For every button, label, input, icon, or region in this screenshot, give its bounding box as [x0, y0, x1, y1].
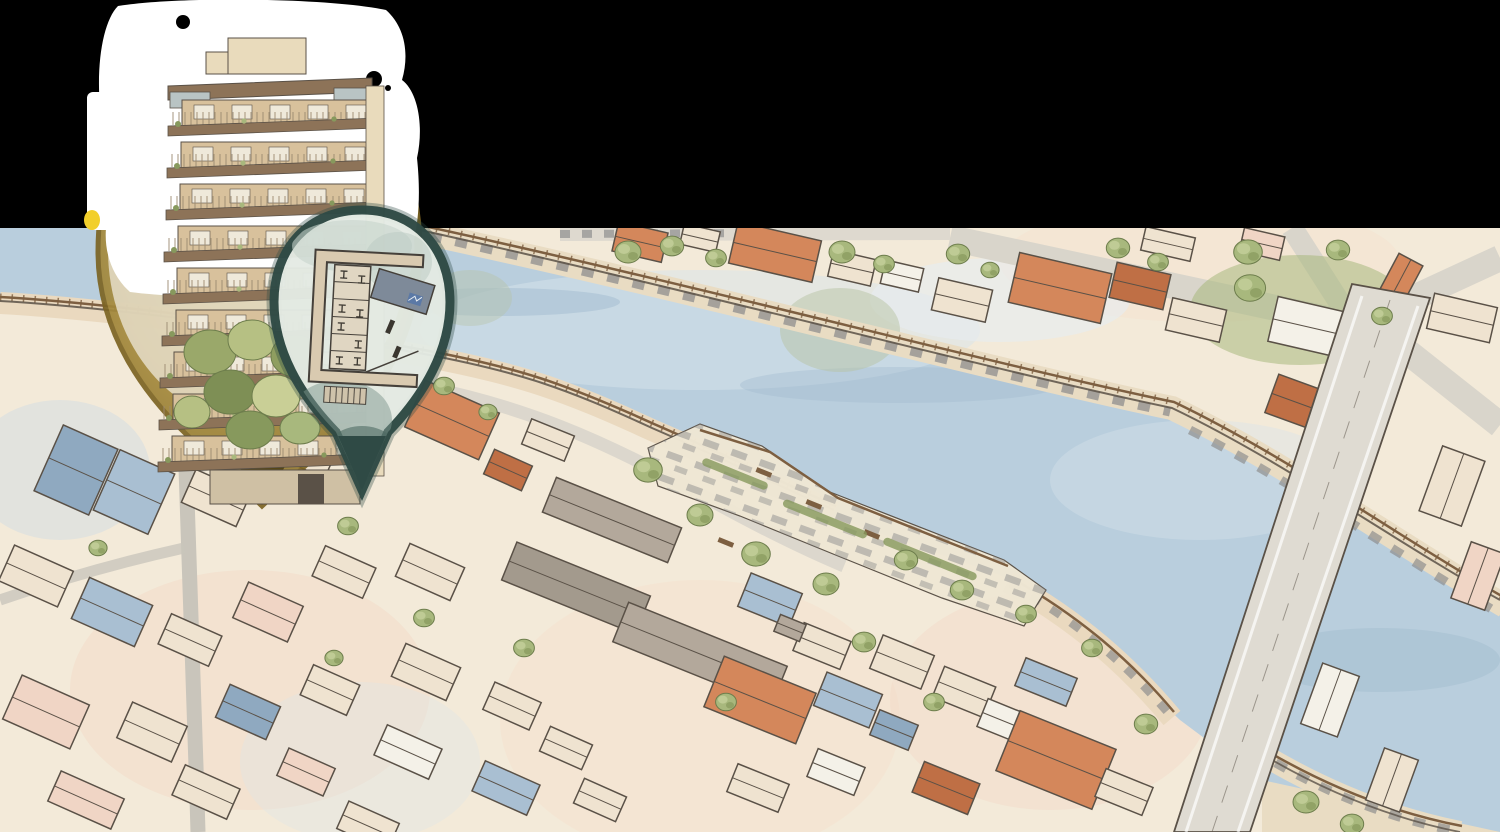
tree	[742, 542, 771, 566]
tree	[706, 249, 727, 267]
plan-stairs	[324, 386, 367, 404]
yellow-paint-fleck	[84, 210, 100, 230]
tree	[874, 255, 895, 273]
tree	[1016, 605, 1037, 623]
tree	[687, 504, 713, 526]
tree	[1326, 240, 1349, 260]
tree	[1082, 639, 1103, 657]
tree	[514, 639, 535, 657]
tree	[894, 550, 917, 570]
ink-dot	[385, 85, 391, 91]
tree	[946, 244, 969, 264]
illustrated-map-scene	[0, 0, 1500, 832]
tree	[89, 540, 107, 555]
tree	[338, 517, 359, 535]
tree	[1106, 238, 1129, 258]
tree	[479, 404, 497, 419]
tree	[325, 650, 343, 665]
tree	[829, 241, 855, 263]
tree	[950, 580, 973, 600]
tree	[615, 241, 641, 263]
tree	[434, 377, 455, 395]
tree	[1293, 791, 1319, 813]
tree	[924, 693, 945, 711]
tree	[1234, 240, 1263, 264]
ink-dot	[176, 15, 190, 29]
tree	[660, 236, 683, 256]
tree	[1340, 814, 1363, 832]
tree	[1372, 307, 1393, 325]
tree	[1234, 275, 1265, 301]
tree	[1148, 253, 1169, 271]
tree	[716, 693, 737, 711]
tree	[981, 262, 999, 277]
tree	[813, 573, 839, 595]
tree	[634, 458, 663, 482]
tree	[414, 609, 435, 627]
tree	[852, 632, 875, 652]
tree	[1134, 714, 1157, 734]
